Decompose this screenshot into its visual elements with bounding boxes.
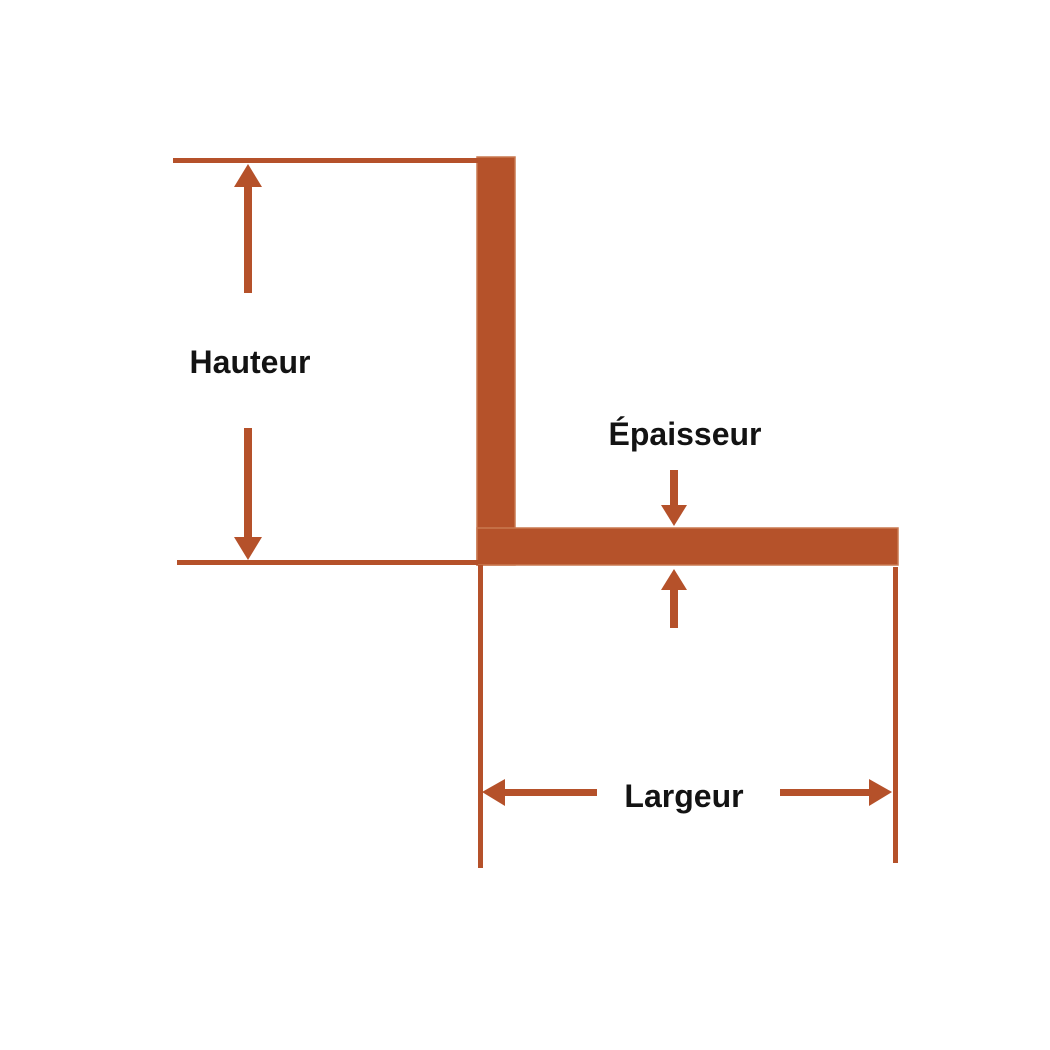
arrow-shaft xyxy=(244,182,252,293)
profile-horizontal-leg xyxy=(477,528,898,565)
arrow-head xyxy=(869,779,892,806)
thickness-arrow-up-icon xyxy=(661,569,687,628)
diagram-canvas: Hauteur Épaisseur xyxy=(0,0,1050,1050)
width-right-extension-line xyxy=(893,567,898,863)
angle-profile-diagram: Hauteur Épaisseur xyxy=(0,0,1050,1050)
height-bottom-extension-line xyxy=(177,560,478,565)
arrow-shaft xyxy=(670,470,678,508)
height-label: Hauteur xyxy=(190,344,311,380)
height-dimension: Hauteur xyxy=(173,158,478,565)
arrow-shaft xyxy=(780,789,872,796)
width-left-extension-line xyxy=(478,565,483,868)
height-arrow-up-icon xyxy=(234,164,262,293)
arrow-head xyxy=(661,505,687,526)
thickness-arrow-down-icon xyxy=(661,470,687,526)
thickness-label: Épaisseur xyxy=(609,416,762,452)
width-dimension: Largeur xyxy=(478,565,898,868)
arrow-head xyxy=(661,569,687,590)
arrow-shaft xyxy=(502,789,597,796)
arrow-head xyxy=(234,537,262,560)
width-label: Largeur xyxy=(624,778,743,814)
arrow-head xyxy=(482,779,505,806)
width-arrow-right-icon xyxy=(780,779,892,806)
arrow-head xyxy=(234,164,262,187)
arrow-shaft xyxy=(244,428,252,539)
width-arrow-left-icon xyxy=(482,779,597,806)
thickness-dimension: Épaisseur xyxy=(609,416,762,628)
profile-vertical-leg xyxy=(477,157,515,565)
height-top-extension-line xyxy=(173,158,478,163)
height-arrow-down-icon xyxy=(234,428,262,560)
arrow-shaft xyxy=(670,588,678,628)
l-profile-shape xyxy=(477,157,898,565)
